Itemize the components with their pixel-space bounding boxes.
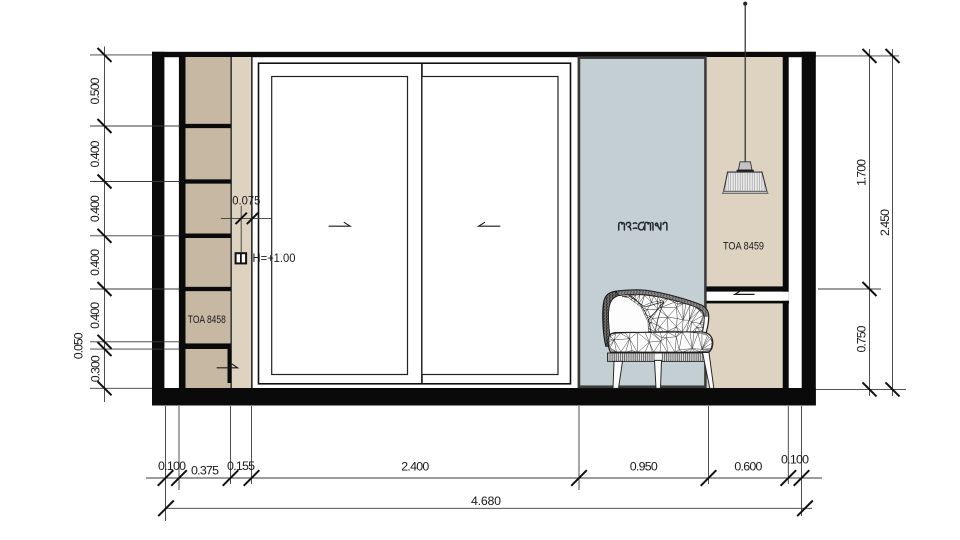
svg-text:TOA 8458: TOA 8458: [188, 314, 226, 326]
svg-text:0.100: 0.100: [781, 453, 809, 467]
svg-text:H=+1.00: H=+1.00: [253, 251, 296, 265]
svg-text:TOA 8459: TOA 8459: [723, 241, 764, 253]
svg-text:4.680: 4.680: [471, 494, 501, 508]
svg-text:0.400: 0.400: [88, 140, 102, 167]
svg-text:0.100: 0.100: [158, 459, 186, 473]
svg-text:0.155: 0.155: [227, 459, 255, 473]
svg-text:0.300: 0.300: [89, 355, 103, 382]
svg-text:0.050: 0.050: [72, 332, 86, 359]
svg-text:1.700: 1.700: [855, 159, 869, 186]
svg-text:0.400: 0.400: [88, 302, 102, 329]
svg-text:0.600: 0.600: [734, 459, 762, 473]
svg-text:2.400: 2.400: [401, 459, 429, 473]
svg-text:0.750: 0.750: [855, 325, 869, 352]
svg-text:0.375: 0.375: [191, 464, 219, 478]
svg-text:0.400: 0.400: [88, 249, 102, 276]
svg-text:2.450: 2.450: [878, 209, 892, 236]
svg-text:0.950: 0.950: [630, 459, 658, 473]
svg-text:0.500: 0.500: [88, 77, 102, 104]
svg-text:0.075: 0.075: [232, 193, 260, 207]
svg-text:0.400: 0.400: [88, 195, 102, 222]
